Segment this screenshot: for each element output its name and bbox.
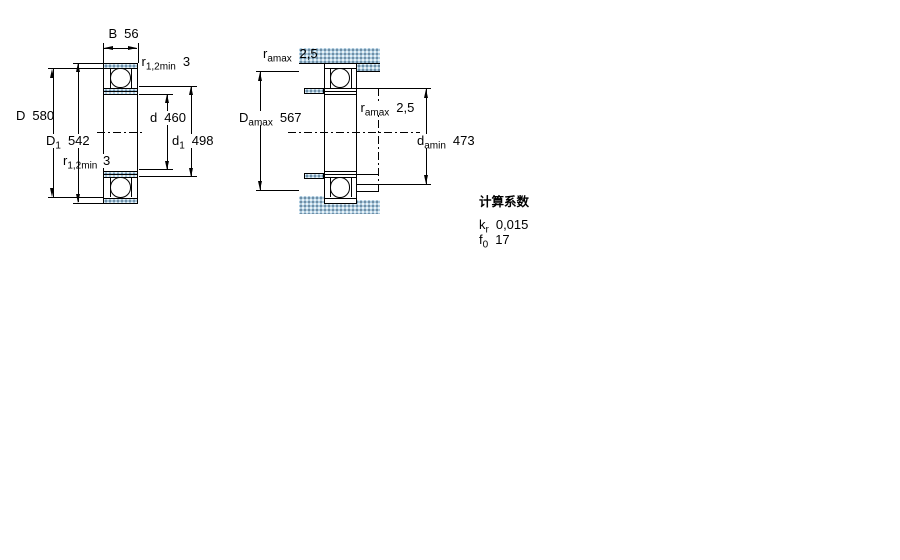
arrowhead: [76, 194, 80, 203]
ring-line: [325, 91, 356, 92]
arrowhead: [128, 46, 137, 50]
dim-label-damin: damin473: [415, 134, 477, 148]
arrowhead: [424, 89, 428, 98]
dim-symbol: D: [46, 133, 55, 148]
dim-symbol: d: [150, 110, 157, 125]
dim-value-ra-top: 2,5: [300, 47, 318, 61]
ring-line: [325, 88, 356, 89]
dim-label-Damax: Damax567: [237, 111, 304, 125]
dim-value-r-mid: 3: [101, 154, 112, 168]
shaft-shoulder-strip-top: [304, 88, 324, 94]
arrowhead: [50, 69, 54, 78]
shoulder-edge-line: [351, 178, 352, 197]
arrowhead: [104, 46, 113, 50]
factor-value: 0,015: [496, 217, 529, 232]
dim-value: 3: [103, 153, 110, 168]
ring-split-line: [104, 174, 137, 175]
dim-label-d: d460: [148, 111, 188, 125]
dim-label-ra-mid: ramax2,5: [359, 101, 417, 115]
arrowhead: [165, 161, 169, 170]
arrowhead: [50, 188, 54, 197]
dim-label-D: D580: [16, 109, 54, 123]
dim-subscript: amax: [248, 117, 272, 128]
dim-subscript: amax: [365, 107, 389, 118]
dimension-line-d: [167, 95, 168, 170]
arrowhead: [258, 72, 262, 81]
extension-line: [139, 86, 197, 87]
dim-value: 2,5: [300, 46, 318, 61]
dim-value: 498: [192, 133, 214, 148]
dim-value: 2,5: [396, 100, 414, 115]
extension-line: [48, 68, 103, 69]
housing-shoulder-edge: [357, 71, 380, 72]
ball-bottom: [330, 177, 351, 198]
dim-subscript: amin: [424, 140, 446, 151]
axis-centerline: [288, 132, 420, 133]
factor-f0: f017: [479, 233, 510, 247]
dim-subscript: 1: [179, 140, 185, 151]
extension-line: [256, 190, 299, 191]
arrowhead: [258, 181, 262, 190]
dim-subscript: 1,2min: [67, 160, 97, 171]
dim-value: 580: [32, 108, 54, 123]
extension-line: [357, 191, 379, 192]
dim-value: 473: [453, 133, 475, 148]
axis-centerline: [97, 132, 143, 133]
bearing-dimension-drawing: B56 r1,2min3 D580 D1542 r1,2min 3: [0, 0, 900, 560]
shaft-shoulder-strip-bottom: [304, 173, 324, 179]
ball-bottom: [110, 177, 131, 198]
dimension-line-d1: [191, 87, 192, 177]
dim-label-D1: D1542: [44, 134, 92, 148]
extension-line: [138, 43, 139, 63]
dim-label-r-top: r1,2min3: [142, 55, 191, 69]
dim-label-ra-top: ramax: [263, 47, 292, 61]
dim-label-d1: d1498: [170, 134, 216, 148]
arrowhead: [189, 86, 193, 95]
dim-symbol: D: [239, 110, 248, 125]
dim-value: 56: [124, 26, 138, 41]
extension-line: [357, 184, 431, 185]
dim-value: 542: [68, 133, 90, 148]
extension-line: [139, 176, 197, 177]
extension-line: [256, 71, 299, 72]
ring-line: [325, 94, 356, 95]
dim-value: 460: [164, 110, 186, 125]
extension-line: [73, 203, 103, 204]
factor-kr: kr0,015: [479, 218, 528, 232]
dim-symbol: D: [16, 108, 25, 123]
shoulder-edge-line: [351, 69, 352, 88]
dim-subscript: 1: [55, 140, 61, 151]
dim-subscript: 1,2min: [146, 61, 176, 72]
extension-line: [357, 174, 379, 175]
dim-label-r-mid: r1,2min: [63, 154, 97, 168]
dim-value: 3: [183, 54, 190, 69]
ring-line: [325, 174, 356, 175]
housing-shoulder: [357, 64, 380, 71]
dim-label-B: B56: [109, 27, 139, 41]
factor-value: 17: [495, 232, 509, 247]
dim-value: 567: [280, 110, 302, 125]
outer-ring-bottom-bar: [103, 198, 138, 204]
extension-line: [48, 197, 103, 198]
dimension-line-Damax: [260, 72, 261, 190]
ball-top: [110, 68, 131, 89]
extension-line: [357, 88, 431, 89]
arrowhead: [189, 168, 193, 177]
factors-title: 计算系数: [479, 196, 529, 210]
dim-subscript: amax: [267, 53, 291, 64]
ring-split-line: [104, 91, 137, 92]
housing-bore-line: [299, 63, 324, 64]
ring-line: [325, 171, 356, 172]
arrowhead: [165, 94, 169, 103]
arrowhead: [424, 175, 428, 184]
dim-symbol: B: [109, 26, 118, 41]
factor-subscript: 0: [483, 240, 489, 251]
